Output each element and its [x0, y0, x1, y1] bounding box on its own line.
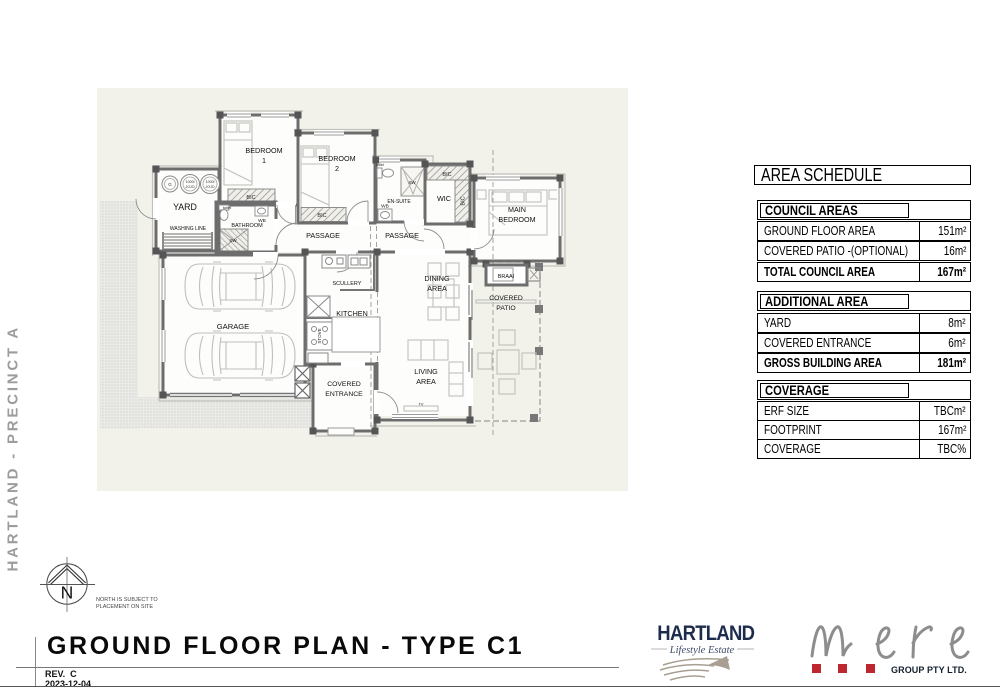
svg-text:SW: SW	[229, 238, 237, 243]
svg-text:DINING: DINING	[424, 274, 450, 283]
svg-text:N: N	[61, 582, 74, 602]
svg-text:1: 1	[262, 156, 266, 165]
svg-text:MAIN: MAIN	[508, 205, 526, 214]
svg-text:G: G	[168, 182, 172, 187]
svg-text:BIC: BIC	[442, 172, 451, 178]
svg-text:toilet: toilet	[376, 163, 384, 167]
svg-text:BATHROOM: BATHROOM	[231, 223, 263, 229]
svg-text:BIC: BIC	[246, 195, 255, 201]
svg-text:PASSAGE: PASSAGE	[306, 231, 340, 240]
svg-text:1000l: 1000l	[206, 180, 215, 184]
svg-text:KITCHEN: KITCHEN	[336, 309, 368, 318]
svg-text:ENTRANCE: ENTRANCE	[325, 391, 363, 398]
svg-text:JOJO: JOJO	[185, 185, 194, 189]
svg-text:LIVING: LIVING	[414, 367, 438, 376]
svg-text:COVERED: COVERED	[489, 295, 523, 302]
svg-text:YARD: YARD	[173, 202, 197, 212]
svg-text:SCULLERY: SCULLERY	[333, 281, 362, 287]
svg-text:BEDROOM: BEDROOM	[245, 146, 282, 155]
svg-text:STOVE: STOVE	[317, 328, 322, 343]
svg-text:BRAAI: BRAAI	[498, 274, 515, 280]
svg-text:JOJO: JOJO	[205, 185, 214, 189]
svg-text:COVERED: COVERED	[327, 381, 361, 388]
svg-text:SW: SW	[408, 180, 416, 185]
svg-text:toilet: toilet	[223, 205, 232, 210]
svg-text:Lifestyle Estate: Lifestyle Estate	[669, 645, 735, 656]
svg-text:BIC: BIC	[317, 213, 326, 219]
svg-text:WASHING LINE: WASHING LINE	[170, 226, 207, 232]
svg-text:WIC: WIC	[437, 194, 451, 203]
svg-text:GARAGE: GARAGE	[217, 322, 250, 331]
svg-text:2: 2	[335, 164, 339, 173]
svg-text:PASSAGE: PASSAGE	[385, 231, 419, 240]
svg-text:BEDROOM: BEDROOM	[498, 215, 535, 224]
svg-text:EN-SUITE: EN-SUITE	[387, 199, 411, 205]
svg-text:TV: TV	[419, 403, 424, 407]
svg-text:BIC: BIC	[461, 196, 467, 205]
svg-text:1000l: 1000l	[186, 180, 195, 184]
svg-text:PATIO: PATIO	[496, 305, 515, 312]
svg-text:BEDROOM: BEDROOM	[318, 154, 355, 163]
svg-text:AREA: AREA	[427, 284, 447, 293]
svg-text:AREA: AREA	[416, 377, 436, 386]
